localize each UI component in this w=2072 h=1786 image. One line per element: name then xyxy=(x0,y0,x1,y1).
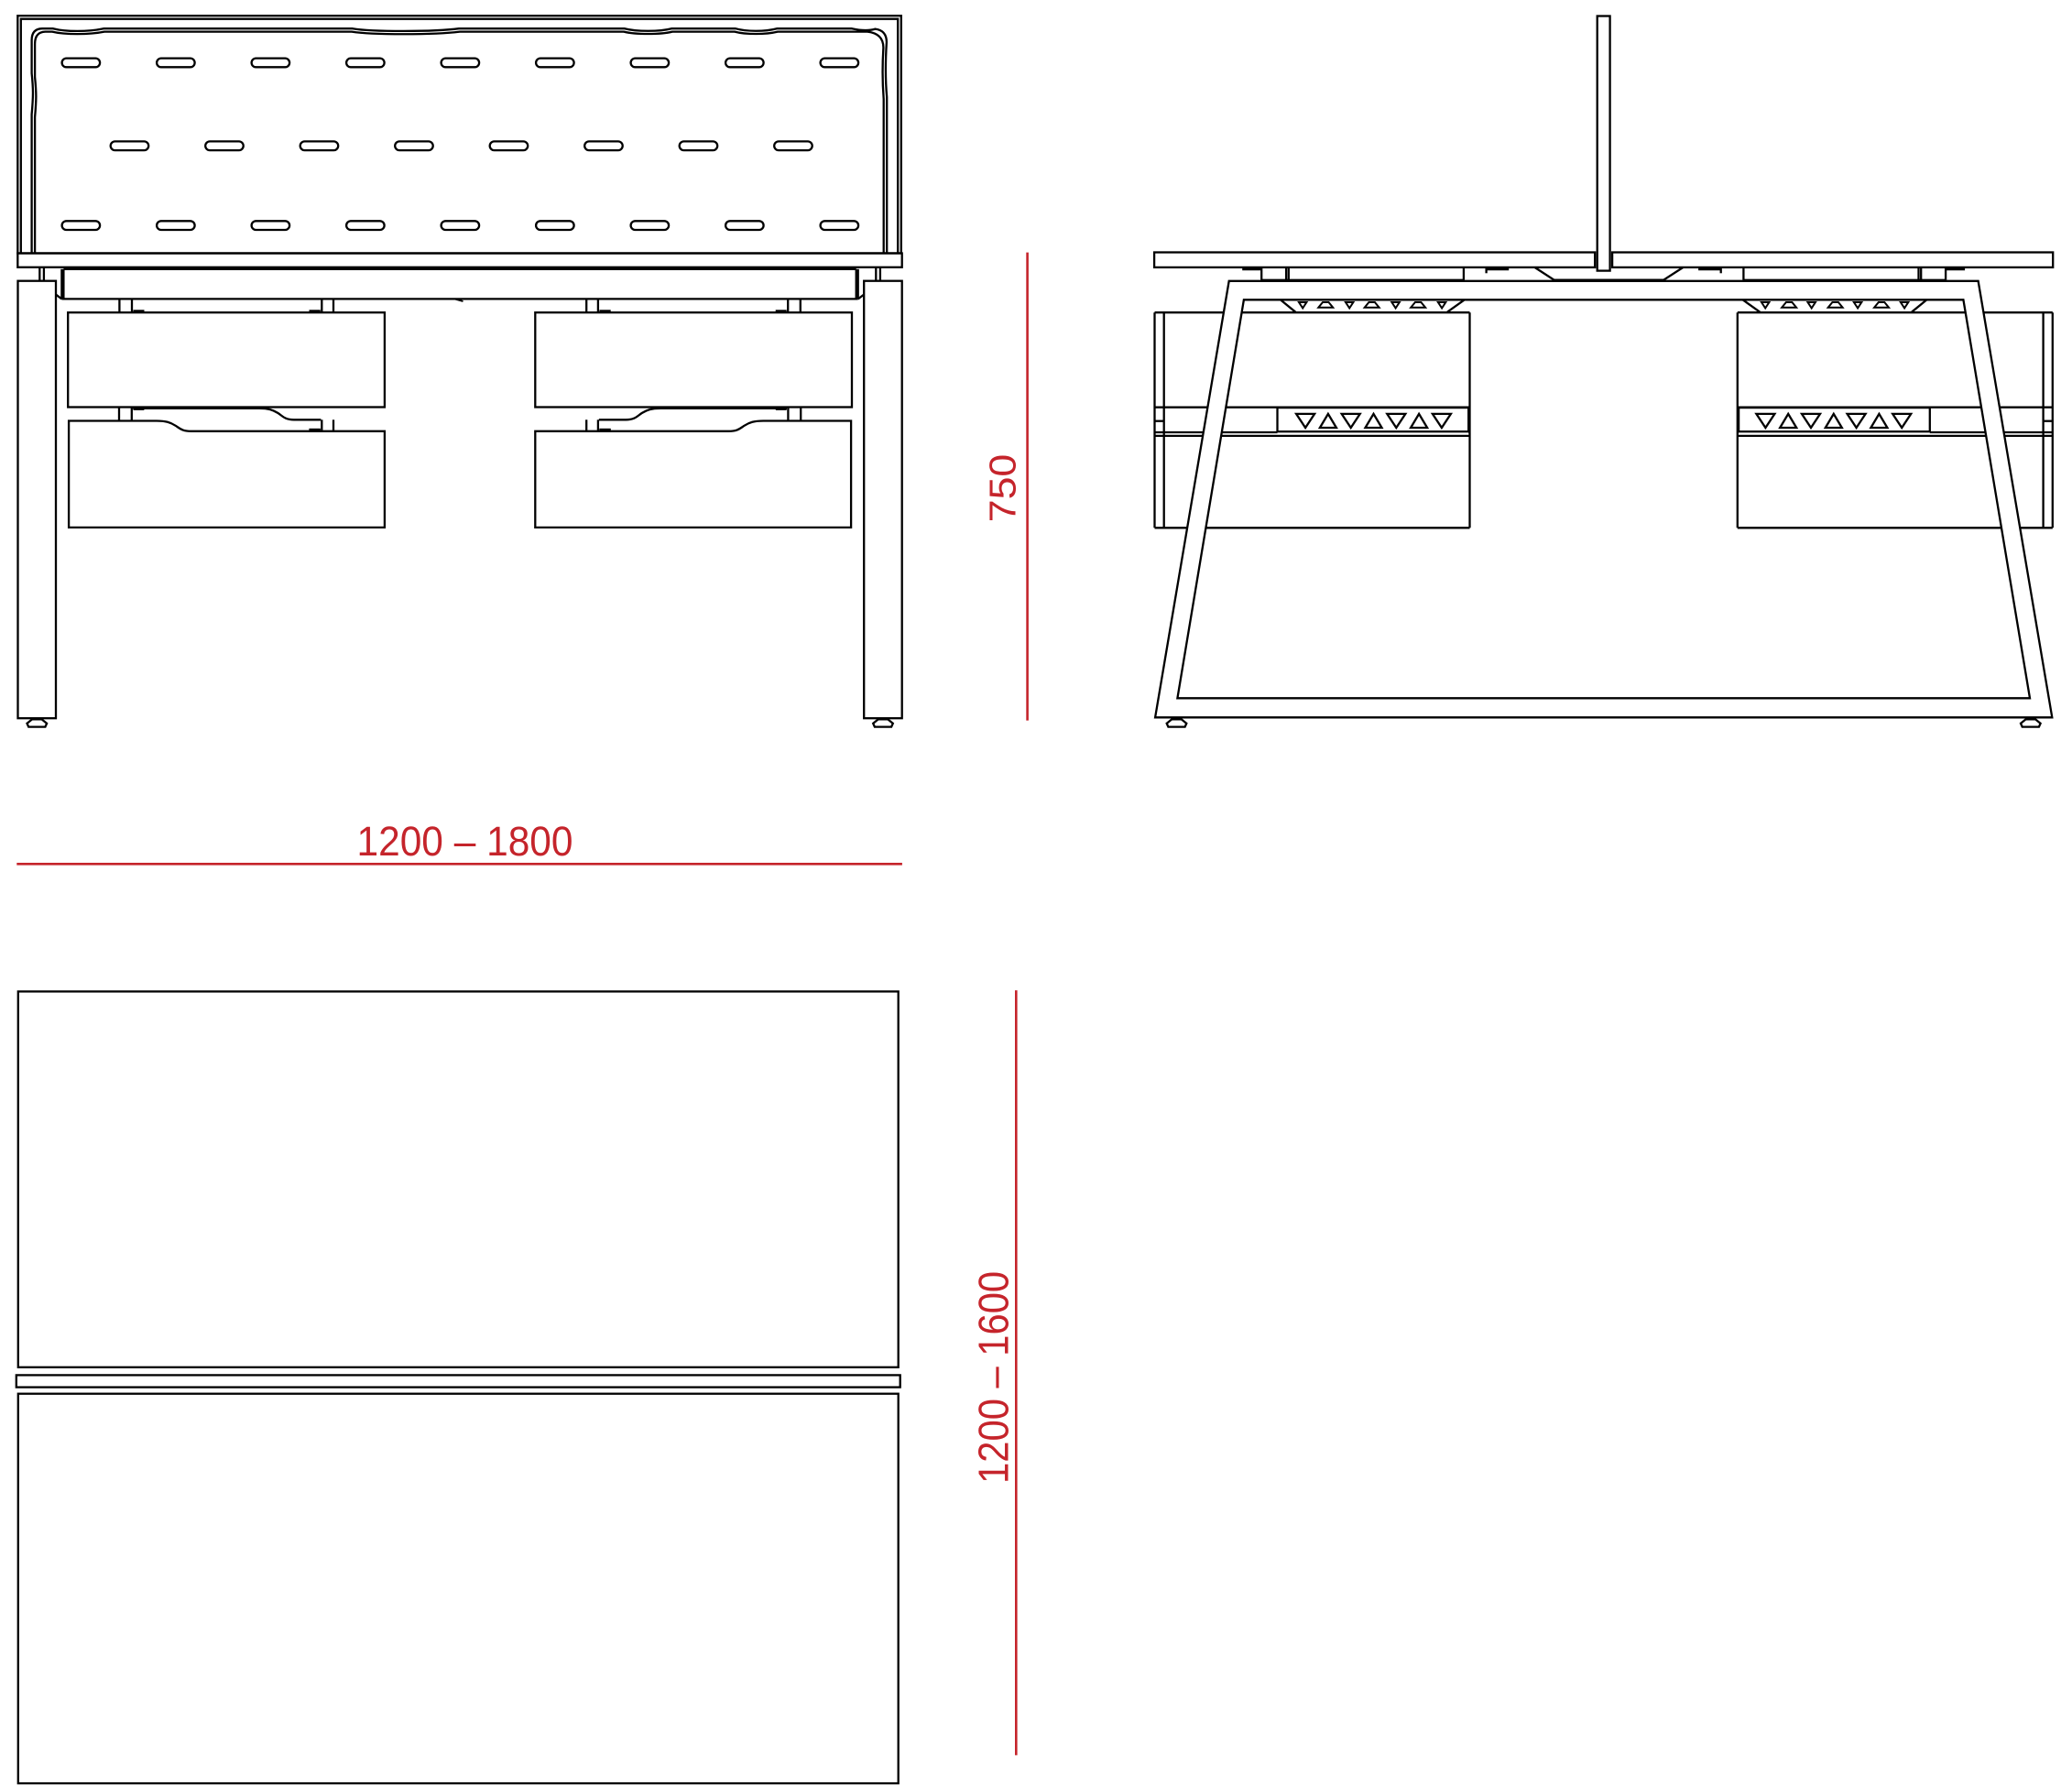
svg-text:750: 750 xyxy=(982,454,1024,523)
svg-text:1200 – 1800: 1200 – 1800 xyxy=(357,818,573,865)
svg-text:1200 – 1600: 1200 – 1600 xyxy=(970,1271,1018,1484)
